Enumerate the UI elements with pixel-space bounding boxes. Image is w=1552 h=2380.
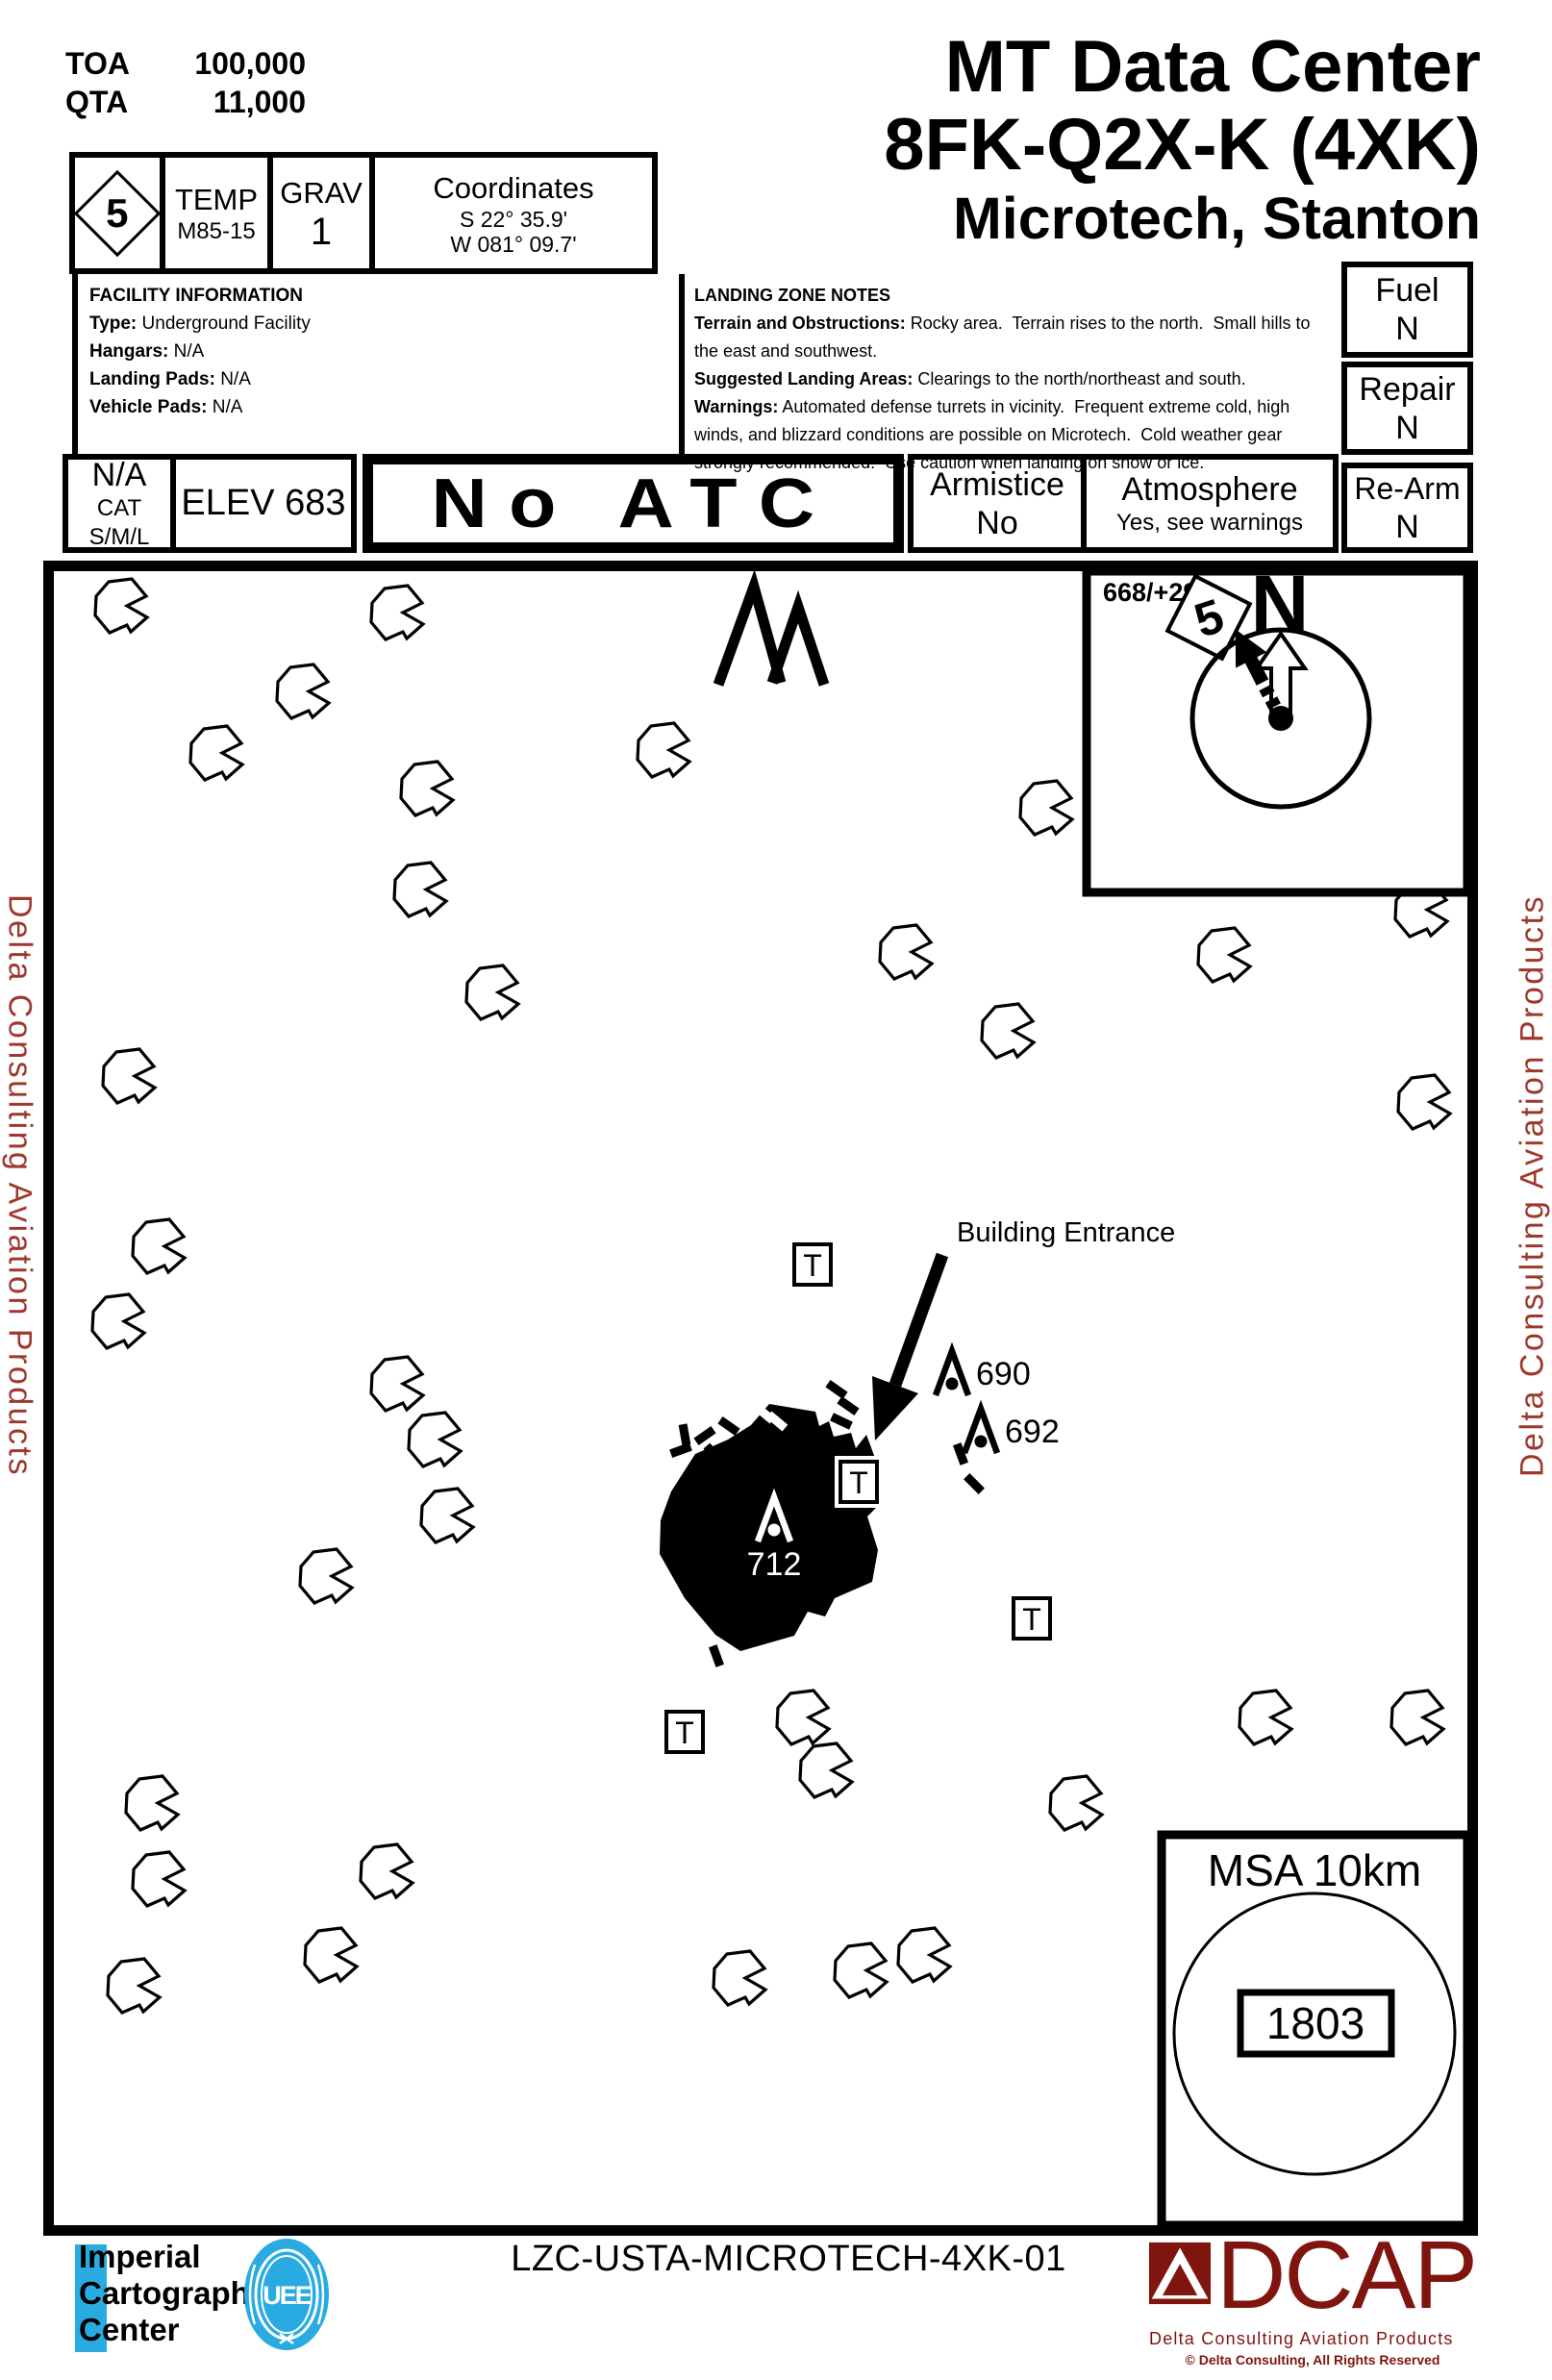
peak-elevation-label: 712 xyxy=(747,1546,802,1583)
pad-diamond-icon: 5 xyxy=(74,169,162,257)
qta-value: 11,000 xyxy=(157,83,306,121)
icc-line-1: Imperial xyxy=(79,2239,267,2275)
pad-diamond-cell: 5 xyxy=(75,158,160,268)
notes-landing-areas: Suggested Landing Areas: Clearings to th… xyxy=(694,365,1335,393)
turret-letter: T xyxy=(1022,1602,1041,1637)
rock-icon xyxy=(880,925,932,979)
rock-icon xyxy=(108,1959,160,2013)
turret-marker: T xyxy=(1014,1598,1050,1639)
fuel-value: N xyxy=(1395,310,1419,348)
peak-elevation-label: 692 xyxy=(1005,1414,1060,1450)
dcap-copyright: © Delta Consulting, All Rights Reserved xyxy=(1149,2352,1476,2367)
atmosphere-value: Yes, see warnings xyxy=(1116,509,1303,538)
mountain-range-icon xyxy=(718,587,824,685)
atc-value: No ATC xyxy=(431,464,836,543)
coordinates-lon: W 081° 09.7' xyxy=(450,232,576,257)
dcap-name: DCAP xyxy=(1216,2229,1476,2321)
rock-icon xyxy=(638,723,689,777)
map-area: 668/+29 5 N Building Entrance xyxy=(43,561,1478,2236)
turret-marker: T xyxy=(794,1244,831,1285)
side-branding-left: Delta Consulting Aviation Products xyxy=(1,894,38,1477)
title-designator: 8FK-Q2X-K (4XK) xyxy=(884,106,1481,185)
category-label: CAT S/M/L xyxy=(68,494,170,552)
side-branding-right: Delta Consulting Aviation Products xyxy=(1514,894,1552,1477)
turret-letter: T xyxy=(803,1248,822,1283)
rearm-label: Re-Arm xyxy=(1354,469,1460,508)
rock-icon xyxy=(1020,781,1072,835)
peak-marker: 690 xyxy=(936,1351,1031,1395)
icc-logo: Imperial Cartography Center xyxy=(75,2239,267,2348)
rock-icon xyxy=(800,1743,852,1797)
rock-icon xyxy=(300,1549,352,1603)
rock-icon xyxy=(1391,1691,1443,1744)
grav-label: GRAV xyxy=(280,175,363,212)
rock-icon xyxy=(133,1219,185,1273)
title-facility-name: MT Data Center xyxy=(884,29,1481,106)
facility-row-vehicle-pads: Vehicle Pads: N/A xyxy=(89,393,674,421)
rock-icon xyxy=(190,726,242,780)
uee-badge-text: UEE xyxy=(263,2281,312,2310)
landing-zone-notes: LANDING ZONE NOTES Terrain and Obstructi… xyxy=(685,274,1335,455)
facility-info-table: 5 TEMP M85-15 GRAV 1 Coordinates S 22° 3… xyxy=(69,152,658,274)
altitude-block: TOA 100,000 QTA 11,000 xyxy=(65,44,306,121)
chart-title: MT Data Center 8FK-Q2X-K (4XK) Microtech… xyxy=(884,29,1481,252)
compass-panel: 668/+29 5 N xyxy=(1087,571,1467,892)
coordinates-label: Coordinates xyxy=(433,170,593,207)
debris-dash-icon xyxy=(693,1426,715,1445)
compass-center-dot xyxy=(1268,706,1293,731)
rock-icon xyxy=(409,1413,461,1466)
rock-icon xyxy=(133,1852,185,1906)
qta-label: QTA xyxy=(65,83,157,121)
map-canvas: 668/+29 5 N Building Entrance xyxy=(54,571,1467,2225)
qta-row: QTA 11,000 xyxy=(65,83,306,121)
dcap-tagline: Delta Consulting Aviation Products xyxy=(1149,2329,1476,2349)
armistice-box: Armistice No xyxy=(908,454,1087,553)
entrance-arrow-head xyxy=(872,1376,918,1441)
atmosphere-box: Atmosphere Yes, see warnings xyxy=(1087,454,1339,553)
category-box: N/A CAT S/M/L xyxy=(63,454,176,553)
rock-icon xyxy=(982,1004,1034,1058)
elevation-value: ELEV 683 xyxy=(181,483,345,524)
rearm-value: N xyxy=(1395,508,1419,546)
msa-panel: MSA 10km 1803 xyxy=(1162,1835,1467,2225)
armistice-label: Armistice xyxy=(930,465,1064,504)
building-entrance-label: Building Entrance xyxy=(957,1217,1175,1248)
turret-marker: T xyxy=(666,1712,703,1752)
rock-icon xyxy=(305,1928,357,1982)
turret-letter: T xyxy=(849,1466,868,1500)
fuel-box: Fuel N xyxy=(1341,262,1473,358)
rock-icon xyxy=(361,1844,413,1898)
rock-icon xyxy=(126,1776,178,1830)
rock-icon xyxy=(1239,1691,1291,1744)
coordinates-cell: Coordinates S 22° 35.9' W 081° 09.7' xyxy=(369,158,652,268)
debris-dash-icon xyxy=(964,1473,985,1494)
repair-value: N xyxy=(1395,409,1419,447)
msa-value: 1803 xyxy=(1266,1998,1364,2048)
building-entrance-annotation: Building Entrance xyxy=(872,1217,1175,1441)
debris-dash-icon xyxy=(830,1413,853,1429)
temp-label: TEMP xyxy=(175,182,258,218)
rock-icon xyxy=(95,579,147,633)
rock-icon xyxy=(1398,1075,1450,1129)
debris-dash-icon xyxy=(825,1380,847,1399)
rock-icon xyxy=(371,1357,423,1411)
repair-label: Repair xyxy=(1359,370,1455,409)
toa-row: TOA 100,000 xyxy=(65,44,306,83)
entrance-arrow-shaft xyxy=(895,1255,942,1385)
rock-icon xyxy=(713,1951,765,2005)
facility-row-hangars: Hangars: N/A xyxy=(89,338,674,365)
uee-badge-icon: UEE xyxy=(243,2238,330,2351)
rock-icon xyxy=(835,1943,887,1997)
rock-icon xyxy=(371,586,423,639)
chart-id: LZC-USTA-MICROTECH-4XK-01 xyxy=(490,2239,1087,2280)
rock-icon xyxy=(277,664,329,718)
grav-cell: GRAV 1 xyxy=(267,158,369,268)
icc-line-3: Center xyxy=(79,2312,267,2348)
repair-box: Repair N xyxy=(1341,362,1473,455)
facility-row-landing-pads: Landing Pads: N/A xyxy=(89,365,674,393)
temp-value: M85-15 xyxy=(177,218,255,245)
rock-icon xyxy=(103,1049,155,1103)
armistice-value: No xyxy=(976,504,1017,542)
rock-icon xyxy=(394,863,446,916)
temp-cell: TEMP M85-15 xyxy=(160,158,267,268)
msa-title: MSA 10km xyxy=(1208,1845,1421,1895)
turret-marker: T xyxy=(835,1456,883,1508)
dcap-logo: DCAP Delta Consulting Aviation Products … xyxy=(1149,2229,1476,2367)
coordinates-lat: S 22° 35.9' xyxy=(460,207,567,232)
rock-icon xyxy=(1198,928,1250,982)
facility-row-type: Type: Underground Facility xyxy=(89,310,674,338)
category-value: N/A xyxy=(92,456,147,494)
notes-heading: LANDING ZONE NOTES xyxy=(694,286,890,305)
atmosphere-label: Atmosphere xyxy=(1121,470,1297,509)
rock-icon xyxy=(401,762,453,815)
facility-heading: FACILITY INFORMATION xyxy=(89,286,303,306)
peak-marker: 692 xyxy=(964,1409,1060,1453)
facility-information: FACILITY INFORMATION Type: Underground F… xyxy=(78,274,674,455)
turret-letter: T xyxy=(675,1716,694,1750)
rock-icon xyxy=(898,1928,950,1982)
toa-value: 100,000 xyxy=(157,44,306,83)
rock-icon xyxy=(92,1294,144,1348)
debris-dash-icon xyxy=(837,1396,859,1415)
peak-elevation-label: 690 xyxy=(976,1356,1031,1392)
icc-line-2: Cartography xyxy=(79,2275,267,2312)
debris-dash-icon xyxy=(709,1644,724,1667)
rock-icon xyxy=(777,1691,829,1744)
atc-box: No ATC xyxy=(363,454,904,553)
debris-dash-icon xyxy=(717,1416,739,1436)
pad-number: 5 xyxy=(106,189,128,236)
grav-value: 1 xyxy=(311,212,332,252)
rock-icon xyxy=(421,1489,473,1542)
title-location: Microtech, Stanton xyxy=(884,185,1481,252)
notes-terrain: Terrain and Obstructions: Rocky area. Te… xyxy=(694,310,1335,365)
fuel-label: Fuel xyxy=(1375,271,1439,310)
landing-zone-chart: TOA 100,000 QTA 11,000 MT Data Center 8F… xyxy=(0,0,1552,2380)
rock-icon xyxy=(466,965,518,1019)
debris-dash-icon xyxy=(679,1423,691,1445)
rearm-box: Re-Arm N xyxy=(1341,463,1473,553)
dcap-delta-icon xyxy=(1149,2229,1211,2317)
toa-label: TOA xyxy=(65,44,157,83)
elevation-box: ELEV 683 xyxy=(176,454,357,553)
rock-icon xyxy=(1050,1776,1102,1830)
